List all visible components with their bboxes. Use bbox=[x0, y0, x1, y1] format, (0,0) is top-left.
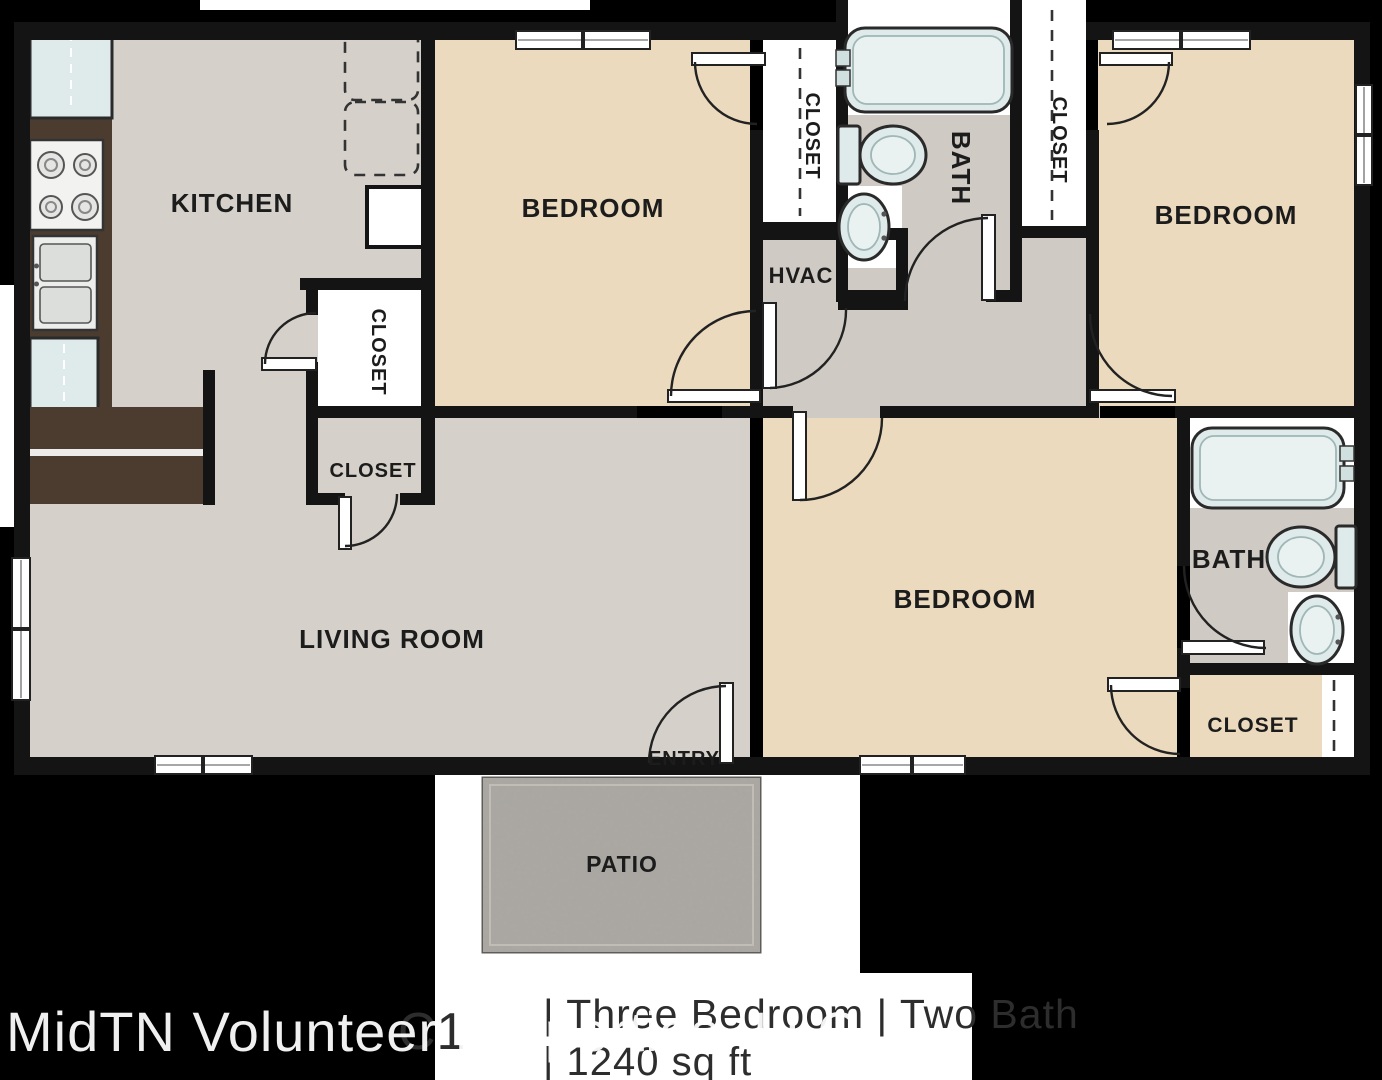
toilet-2-tank bbox=[1336, 526, 1356, 588]
wall-bedroom1-right bbox=[750, 130, 763, 418]
patio-label: PATIO bbox=[586, 851, 658, 877]
floor-plan-canvas: KITCHEN BEDROOM BEDROOM BEDROOM LIVING R… bbox=[0, 0, 1382, 1080]
kitchen-label: KITCHEN bbox=[171, 188, 294, 218]
sink-faucet-dot bbox=[34, 282, 39, 287]
bathtub-1-faucet bbox=[836, 70, 850, 86]
wall-closet3-left-upper bbox=[306, 290, 318, 315]
wall-bedroom3-top-left bbox=[763, 406, 793, 418]
paper-margin-left bbox=[0, 285, 14, 527]
living-room-label: LIVING ROOM bbox=[299, 624, 485, 654]
window-bedroom2-right bbox=[1356, 85, 1372, 185]
entry-label: ENTRY bbox=[648, 748, 720, 770]
toilet-2-seat bbox=[1278, 537, 1324, 577]
kitchen-nook bbox=[367, 187, 424, 247]
bath-2-label: BATH bbox=[1192, 544, 1266, 574]
sink-2-faucet-dot bbox=[1335, 614, 1340, 619]
sink-1-faucet-dot bbox=[881, 235, 886, 240]
window-bedroom1 bbox=[516, 31, 650, 49]
window-bedroom2 bbox=[1113, 31, 1250, 49]
bedroom-1-label: BEDROOM bbox=[522, 193, 665, 223]
closet-3-label: CLOSET bbox=[367, 308, 389, 395]
wall-bath2-left-upper bbox=[1177, 418, 1190, 566]
bathtub-2-faucet bbox=[1340, 446, 1354, 461]
closet-5-label: CLOSET bbox=[1207, 714, 1298, 737]
wall-closet4-left bbox=[306, 418, 318, 505]
closet-5-rod-area bbox=[1322, 675, 1354, 757]
toilet-1-tank bbox=[838, 126, 860, 184]
wall-bedroom2-left bbox=[1086, 130, 1099, 418]
window-living-left bbox=[12, 558, 30, 700]
bathtub-2-faucet bbox=[1340, 466, 1354, 481]
paper-margin-top bbox=[200, 0, 590, 10]
sink-basin-bottom bbox=[40, 287, 91, 323]
wall-bedroom2-bottom-right bbox=[1175, 406, 1354, 418]
wall-closet3-closet4-divider bbox=[306, 406, 435, 418]
watermark-text: MidTN Volunteer Properties, LLC bbox=[6, 1000, 859, 1063]
sink-faucet-dot bbox=[34, 264, 39, 269]
wall-closet5-top bbox=[1177, 663, 1354, 675]
bedroom-3-label: BEDROOM bbox=[894, 584, 1037, 614]
bedroom-2-label: BEDROOM bbox=[1155, 200, 1298, 230]
bar-counter-edge bbox=[28, 449, 207, 456]
wall-bedroom3-top bbox=[880, 406, 1090, 418]
bathtub-1-faucet bbox=[836, 50, 850, 66]
wall-closet2-bottom bbox=[1016, 226, 1090, 238]
hvac-label: HVAC bbox=[769, 263, 834, 288]
window-bedroom3-bottom bbox=[860, 756, 965, 774]
bathtub-2-inner bbox=[1200, 436, 1336, 500]
wall-kitchen-stub bbox=[203, 370, 215, 505]
wall-closet3-top bbox=[300, 278, 434, 290]
bath-1-label: BATH bbox=[946, 131, 976, 205]
closet-1-label: CLOSET bbox=[801, 92, 823, 179]
closet-4-label: CLOSET bbox=[329, 460, 416, 482]
wall-closet4-right bbox=[421, 418, 435, 505]
closet-2-label: CLOSET bbox=[1048, 96, 1070, 183]
toilet-1-seat bbox=[871, 136, 915, 174]
sink-1-faucet-dot bbox=[881, 211, 886, 216]
bedroom-1-floor bbox=[435, 40, 750, 406]
sink-1-inner bbox=[848, 204, 880, 250]
wall-hvac-bottom bbox=[838, 298, 908, 310]
sink-2-inner bbox=[1300, 606, 1334, 654]
window-living-bottom bbox=[155, 756, 252, 774]
bathtub-1-inner bbox=[853, 36, 1004, 104]
sink-2-faucet-dot bbox=[1335, 639, 1340, 644]
sink-basin-top bbox=[40, 244, 91, 281]
wall-bedroom1-bottom bbox=[421, 406, 637, 418]
